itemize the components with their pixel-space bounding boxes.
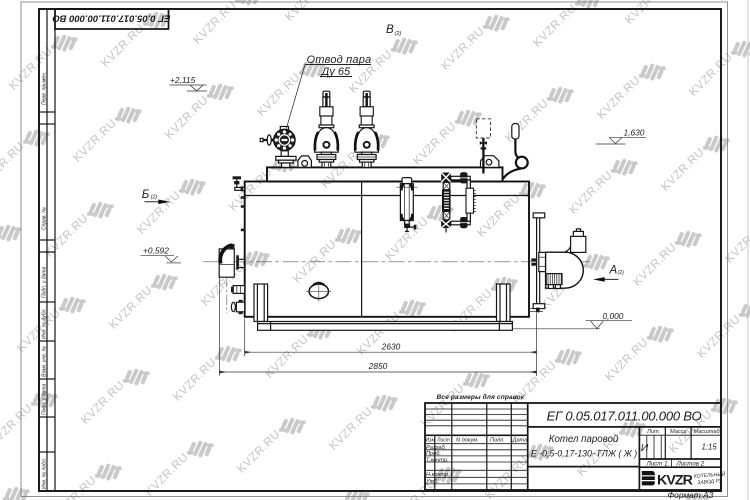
- svg-text:(2): (2): [395, 31, 402, 37]
- svg-text:Листов 2: Листов 2: [676, 460, 705, 467]
- svg-text:Инв. № дубл.: Инв. № дубл.: [42, 308, 48, 339]
- svg-text:Справ. №: Справ. №: [42, 207, 48, 230]
- svg-text:Дата: Дата: [512, 438, 528, 444]
- svg-text:Подп. и дата: Подп. и дата: [42, 383, 48, 415]
- svg-text:Подп.: Подп.: [490, 438, 505, 444]
- svg-text:Все размеры для справок: Все размеры для справок: [437, 393, 525, 401]
- svg-text:Б: Б: [142, 189, 150, 201]
- svg-text:Лист: Лист: [436, 437, 450, 443]
- svg-text:KVZR: KVZR: [657, 472, 693, 488]
- svg-text:Перв. примен.: Перв. примен.: [42, 72, 48, 105]
- svg-text:А: А: [609, 264, 618, 276]
- svg-text:Формат А3: Формат А3: [668, 490, 714, 500]
- svg-text:1:15: 1:15: [702, 443, 718, 452]
- svg-text:0,000: 0,000: [603, 311, 624, 321]
- svg-text:+0,592: +0,592: [143, 246, 169, 256]
- svg-text:И: И: [641, 442, 649, 454]
- svg-text:1,630: 1,630: [624, 127, 645, 137]
- svg-text:Лист 1: Лист 1: [646, 460, 668, 467]
- svg-text:Лит.: Лит.: [646, 429, 660, 435]
- svg-text:(2): (2): [151, 195, 158, 201]
- svg-text:Н.контр.: Н.контр.: [426, 472, 450, 478]
- svg-text:Отвод пара: Отвод пара: [307, 54, 372, 66]
- svg-text:Масштаб: Масштаб: [694, 429, 721, 435]
- svg-text:Е -0,5-0,17-130- ГЛЖ ( Ж ): Е -0,5-0,17-130- ГЛЖ ( Ж ): [531, 448, 637, 458]
- svg-text:+2,115: +2,115: [170, 75, 196, 85]
- svg-text:Разраб.: Разраб.: [426, 445, 446, 451]
- svg-text:Проб.: Проб.: [426, 451, 441, 457]
- svg-text:Изм: Изм: [426, 437, 436, 443]
- svg-text:Котел паровой: Котел паровой: [549, 434, 619, 445]
- svg-text:ЕГ 0.05.017.011.00.000 ВО: ЕГ 0.05.017.011.00.000 ВО: [547, 409, 702, 424]
- svg-text:N докум.: N докум.: [456, 438, 479, 444]
- svg-text:2850: 2850: [368, 361, 388, 371]
- svg-text:2630: 2630: [381, 341, 401, 351]
- svg-text:Взам. инв. №: Взам. инв. №: [42, 345, 48, 377]
- svg-text:В: В: [386, 24, 394, 36]
- svg-text:Инв. № подл.: Инв. № подл.: [42, 458, 48, 489]
- svg-text:Утб.: Утб.: [425, 479, 439, 485]
- svg-text:Т.контр.: Т.контр.: [426, 457, 449, 463]
- svg-text:Масса: Масса: [670, 429, 687, 435]
- svg-text:Подп. и дата: Подп. и дата: [42, 266, 48, 298]
- svg-text:(2): (2): [618, 270, 625, 276]
- svg-text:ЕГ 0.05.017.011.00.000 ВО: ЕГ 0.05.017.011.00.000 ВО: [52, 13, 171, 24]
